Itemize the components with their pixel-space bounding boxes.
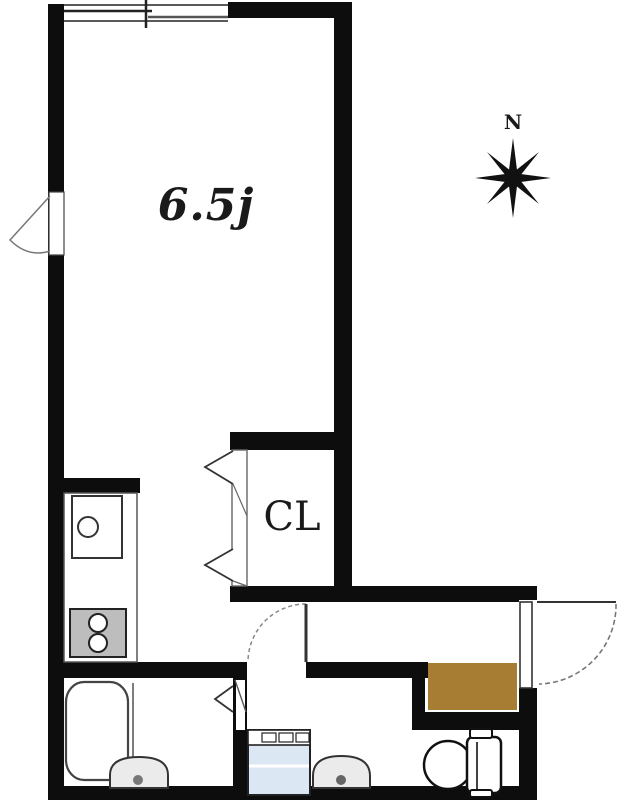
wall-kitchen-top — [48, 478, 140, 493]
closet-label: CL — [260, 497, 324, 537]
floorplan-canvas: 6.5j CL N — [0, 0, 617, 800]
closet-bifold-door-icon — [205, 450, 247, 586]
wall-right-upper — [334, 2, 352, 602]
wall-entry-right — [519, 688, 537, 796]
wall-mid-right — [306, 662, 428, 678]
wall-mid-left — [48, 662, 247, 678]
kitchen-sink-icon — [72, 496, 122, 558]
room-size-label: 6.5j — [148, 184, 264, 228]
wall-top-right — [228, 2, 352, 18]
washing-machine-icon — [248, 730, 310, 795]
wall-left — [48, 4, 64, 800]
compass-rose-icon — [475, 138, 551, 218]
entrance-swing-door-icon — [519, 600, 616, 688]
sliding-window-icon — [64, 0, 228, 28]
compass-north-label: N — [495, 112, 531, 132]
gas-stove-icon — [70, 609, 126, 657]
hall-swing-door-icon — [248, 604, 306, 662]
wall-toilet-top — [412, 712, 537, 730]
swing-door-left-icon — [10, 192, 64, 255]
wall-hall-top — [230, 586, 537, 602]
wall-closet-top — [230, 432, 334, 450]
bathroom-folding-door-icon — [215, 680, 246, 730]
bathroom-basin-icon — [110, 757, 168, 788]
entrance-mat — [428, 663, 517, 710]
washroom-basin-icon — [313, 756, 370, 788]
